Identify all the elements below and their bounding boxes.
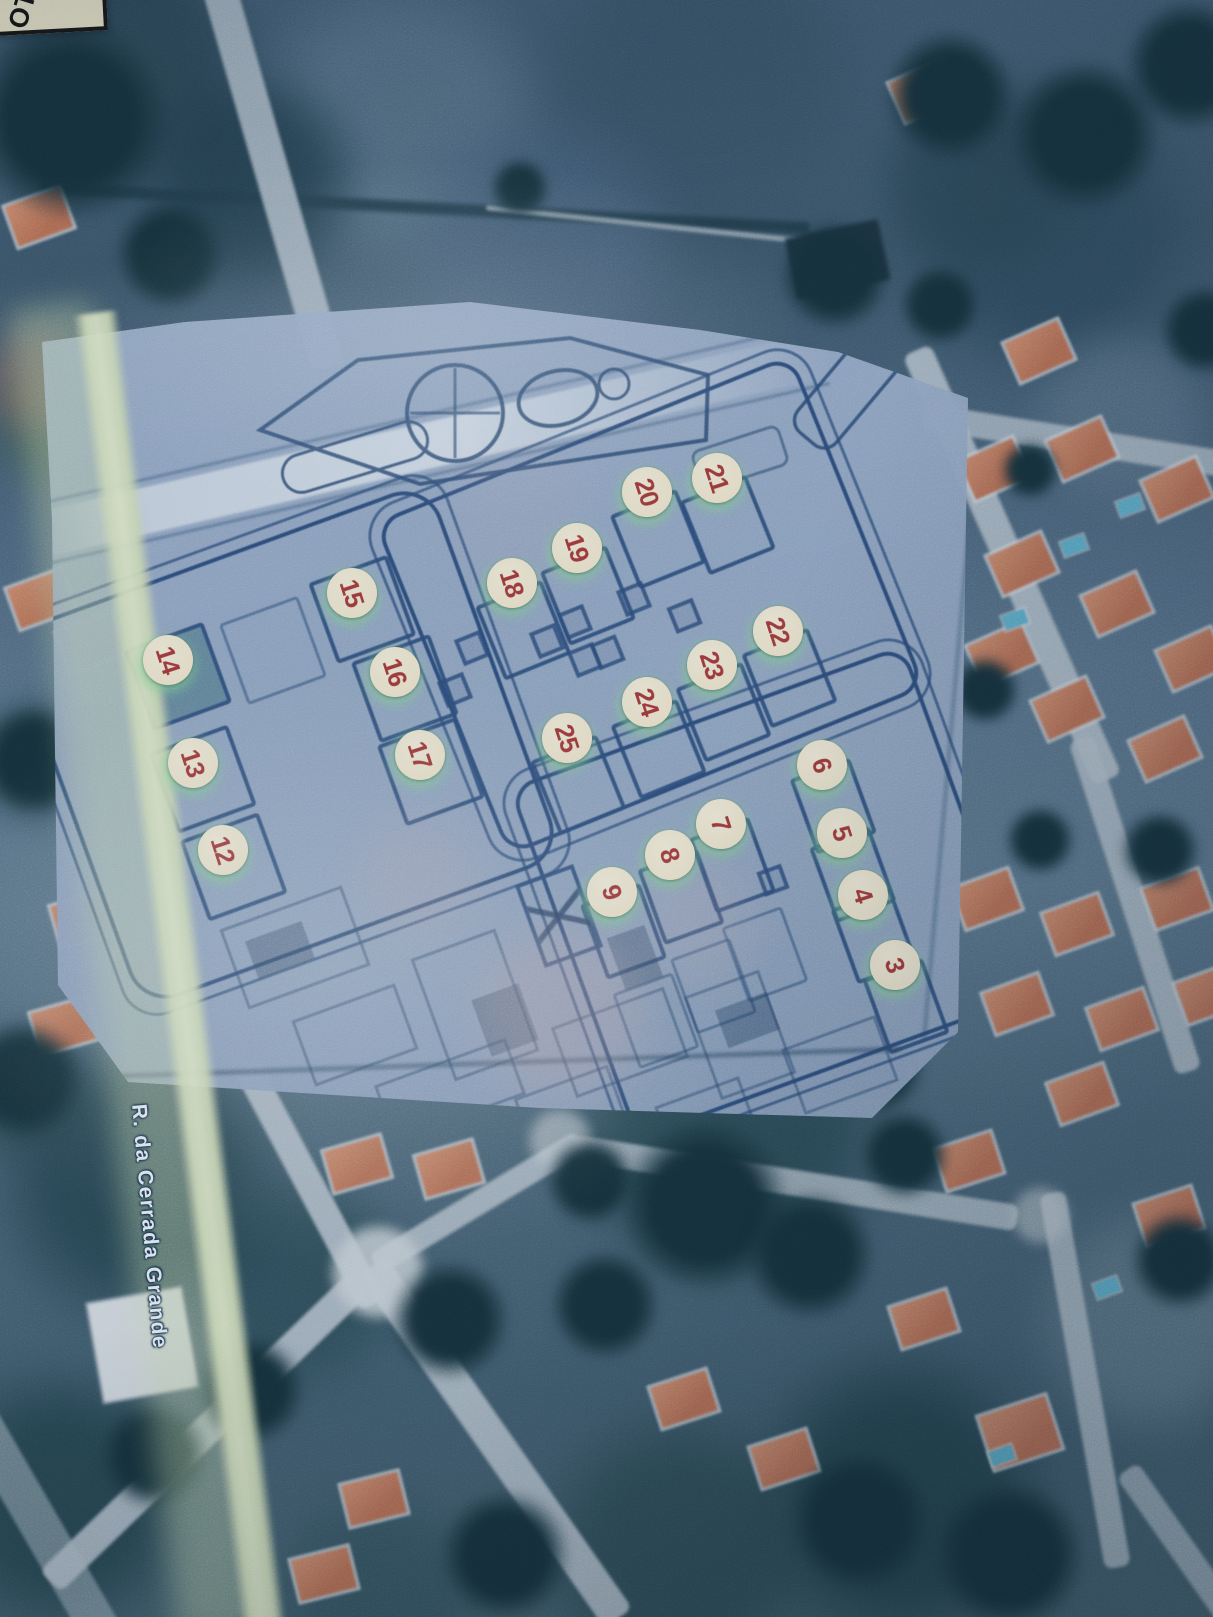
lot-marker[interactable]: 8 — [645, 830, 695, 880]
lot-marker[interactable]: 13 — [168, 738, 218, 788]
lot-marker[interactable]: 22 — [753, 606, 803, 656]
lot-marker[interactable]: 21 — [692, 453, 742, 503]
lot-marker[interactable]: 9 — [587, 867, 637, 917]
corner-label-text: OT — [2, 0, 43, 32]
lot-marker[interactable]: 6 — [797, 740, 847, 790]
lot-marker[interactable]: 15 — [327, 568, 377, 618]
lot-marker[interactable]: 14 — [143, 635, 193, 685]
lot-markers-layer: 3 4 5 6 7 8 9 12 13 14 15 — [0, 0, 1213, 1617]
lot-marker[interactable]: 12 — [198, 825, 248, 875]
lot-marker[interactable]: 7 — [696, 799, 746, 849]
lot-marker[interactable]: 4 — [838, 870, 888, 920]
lot-marker[interactable]: 16 — [370, 647, 420, 697]
lot-marker[interactable]: 18 — [487, 558, 537, 608]
lot-marker[interactable]: 3 — [870, 940, 920, 990]
lot-marker[interactable]: 5 — [817, 808, 867, 858]
lot-marker[interactable]: 20 — [622, 467, 672, 517]
aerial-map-photo: R. da Cerrada Grande 3 4 5 6 7 8 9 12 13 — [0, 0, 1213, 1617]
lot-marker[interactable]: 25 — [542, 713, 592, 763]
lot-marker[interactable]: 19 — [552, 523, 602, 573]
lot-marker[interactable]: 17 — [395, 730, 445, 780]
lot-marker[interactable]: 23 — [687, 640, 737, 690]
lot-marker[interactable]: 24 — [622, 677, 672, 727]
